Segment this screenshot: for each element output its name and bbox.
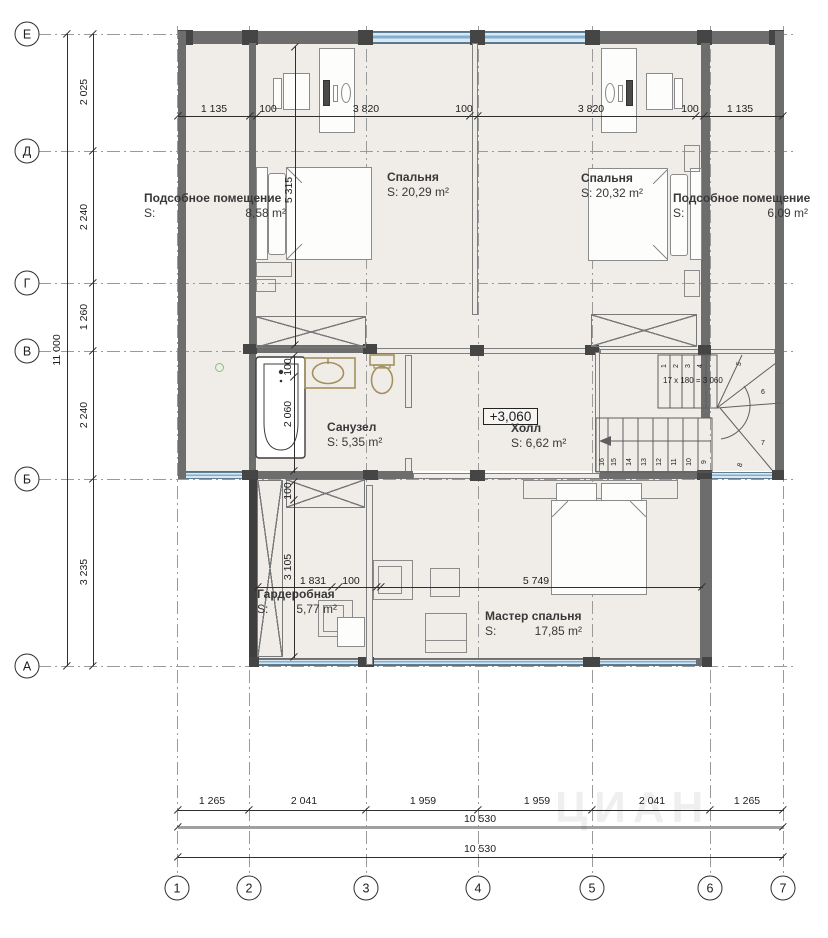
- wall-bath-right-upper: [405, 355, 412, 408]
- room-name: Мастер спальня: [485, 609, 582, 624]
- axis-col-1: 1: [165, 876, 190, 901]
- wall-hall-top: [372, 348, 600, 354]
- room-area: S: 6,62 m²: [511, 436, 566, 451]
- wardrobe-top: [286, 479, 365, 508]
- dim-bath-width: 2 060: [282, 401, 294, 427]
- dim-line-master: [380, 587, 703, 588]
- axis-col-4: 4: [466, 876, 491, 901]
- room-area-value: 17,85 m²: [535, 624, 582, 639]
- dim-wardrobe-wall: 100: [282, 482, 294, 500]
- dim-bottom-total-1: 10 530: [464, 813, 496, 825]
- axis-row-E: Е: [15, 22, 40, 47]
- room-name: Спальня: [581, 171, 643, 186]
- tread-4: 4: [697, 364, 704, 368]
- room-bathroom: Санузел S: 5,35 m²: [327, 420, 382, 450]
- wardrobe-right-bedroom: [591, 314, 697, 347]
- axis-row-B: Б: [15, 467, 40, 492]
- sink-bowl: [313, 363, 344, 384]
- room-name: Подсобное помещение: [144, 191, 286, 206]
- dim-line-left-total: [67, 34, 68, 666]
- tread-6: 6: [761, 389, 765, 396]
- room-area: S: 20,29 m²: [387, 185, 449, 200]
- axis-line-A: [38, 666, 795, 667]
- wall-wardrobe-divider: [366, 485, 373, 665]
- window-b-left: [186, 472, 246, 479]
- dim-master-width: 5 749: [523, 575, 549, 587]
- room-area-label: S:: [485, 624, 496, 639]
- wardrobe-box-2: [337, 617, 365, 647]
- dim-bedroom-depth: 5 315: [283, 177, 295, 203]
- watermark: ЦИАН: [555, 783, 710, 833]
- room-area: S: 5,35 m²: [327, 435, 382, 450]
- wall-hall-bottom: [413, 473, 600, 479]
- dim-top-1: 100: [259, 103, 277, 115]
- dim-top-4: 3 820: [578, 103, 604, 115]
- bathtub-drain: [280, 380, 283, 383]
- tread-16: 16: [599, 458, 606, 466]
- window-bottom-3: [600, 659, 696, 665]
- bed-right-fold-bottom: [653, 245, 668, 260]
- tread-14: 14: [626, 458, 633, 466]
- pillar-v-3: [470, 345, 484, 356]
- tread-2: 2: [673, 364, 680, 368]
- tread-10: 10: [686, 458, 693, 466]
- toilet-bowl: [372, 367, 393, 394]
- bed-master-fold-right: [630, 501, 646, 517]
- axis-col-5: 5: [580, 876, 605, 901]
- chair-right: [605, 83, 615, 103]
- bed-master-fold-left: [552, 501, 568, 517]
- wardrobe-left-bedroom: [256, 316, 366, 348]
- monitor-right: [626, 80, 633, 106]
- ottoman-master: [425, 613, 467, 653]
- room-area-value: 5,77 m²: [296, 602, 337, 617]
- dim-line-wardrobe-h: [257, 587, 380, 588]
- pillar-top-5: [585, 30, 600, 45]
- keyboard-right: [618, 85, 623, 102]
- dim-top-3: 100: [455, 103, 473, 115]
- dim-left-2: 1 260: [78, 304, 90, 330]
- room-area: S: 20,32 m²: [581, 186, 643, 201]
- dresser-left: [283, 73, 310, 110]
- room-area-value: 6,09 m²: [767, 206, 808, 221]
- wall-left-outer: [178, 31, 186, 479]
- pillar-b-3: [470, 470, 485, 481]
- dim-line-total-2: [178, 857, 784, 858]
- chair-left: [341, 83, 351, 103]
- staircase: 1 2 3 4 5 6 7 8 9 10 11 12 13 14 15 16 1…: [593, 348, 788, 480]
- monitor-left: [323, 80, 330, 106]
- pillar-b-2: [363, 470, 378, 480]
- wall-bedroom-divider: [472, 43, 478, 315]
- tread-1: 1: [661, 364, 668, 368]
- tread-8: 8: [737, 462, 745, 468]
- room-name: Спальня: [387, 170, 449, 185]
- axis-col-7: 7: [771, 876, 796, 901]
- dim-left-4: 3 235: [78, 559, 90, 585]
- toilet-tank: [370, 355, 394, 365]
- axis-line-4: [478, 26, 479, 877]
- tread-13: 13: [641, 458, 648, 466]
- room-bedroom-left: Спальня S: 20,29 m²: [387, 170, 449, 200]
- room-hall: Холл S: 6,62 m²: [511, 421, 566, 451]
- axis-line-G: [38, 283, 795, 284]
- shelf-left-1: [256, 262, 292, 277]
- shelf-right-2: [684, 270, 700, 297]
- dim-top-5: 100: [681, 103, 699, 115]
- dim-bottom-5: 1 265: [734, 795, 760, 807]
- dim-bottom-total-2: 10 530: [464, 843, 496, 855]
- shelf-left-2: [256, 279, 276, 292]
- room-area-label: S:: [673, 206, 684, 221]
- dim-left-3: 2 240: [78, 402, 90, 428]
- vent-marker: [215, 363, 224, 372]
- dim-bottom-2: 1 959: [410, 795, 436, 807]
- axis-col-3: 3: [354, 876, 379, 901]
- dim-line-bath: [294, 355, 295, 473]
- dim-bottom-1: 2 041: [291, 795, 317, 807]
- seat-master-1-inner: [378, 566, 402, 594]
- room-area-value: 8,58 m²: [245, 206, 286, 221]
- tread-9: 9: [701, 460, 708, 464]
- tread-12: 12: [656, 458, 663, 466]
- room-master: Мастер спальня S: 17,85 m²: [485, 609, 582, 639]
- tread-7: 7: [761, 440, 765, 447]
- dim-wardrobe-wall2: 100: [342, 575, 360, 587]
- bed-right-fold-top: [653, 169, 668, 184]
- room-name: Подсобное помещение: [673, 191, 808, 206]
- dim-left-total: 11 000: [51, 334, 63, 365]
- room-utility-right: Подсобное помещение S: 6,09 m²: [673, 191, 808, 221]
- stairs-formula: 17 x 180 = 3 060: [663, 376, 723, 385]
- shelf-right-1: [684, 145, 700, 172]
- dim-top-2: 3 820: [353, 103, 379, 115]
- dim-top-6: 1 135: [727, 103, 753, 115]
- floor-plan: 1 2 3 4 5 6 7 8 9 10 11 12 13 14 15 16 1…: [0, 0, 828, 938]
- axis-col-2: 2: [237, 876, 262, 901]
- tread-15: 15: [611, 458, 618, 466]
- wall-bath-bottom: [249, 471, 413, 479]
- dim-left-0: 2 025: [78, 79, 90, 105]
- pillar-bot-4: [702, 657, 712, 667]
- axis-col-6: 6: [698, 876, 723, 901]
- axis-row-A: А: [15, 654, 40, 679]
- room-area-label: S:: [144, 206, 155, 221]
- seat-master-2: [430, 568, 460, 597]
- axis-row-G: Г: [15, 271, 40, 296]
- dim-line-5315: [295, 46, 296, 346]
- pillar-bot-3: [583, 657, 600, 667]
- dim-top-0: 1 135: [201, 103, 227, 115]
- dim-bath-wall: 100: [282, 358, 294, 376]
- wardrobe-tall: [257, 480, 283, 657]
- room-name: Гардеробная: [257, 587, 337, 602]
- window-bottom-1: [258, 659, 358, 665]
- wall-lower-left: [249, 479, 257, 666]
- room-name: Санузел: [327, 420, 382, 435]
- wall-lower-right: [700, 479, 712, 666]
- dim-line-wardrobe-v: [294, 481, 295, 658]
- room-name: Холл: [511, 421, 566, 436]
- dim-bottom-0: 1 265: [199, 795, 225, 807]
- axis-row-D: Д: [15, 139, 40, 164]
- tread-11: 11: [671, 458, 678, 465]
- dim-bottom-3: 1 959: [524, 795, 550, 807]
- dim-wardrobe-width: 1 831: [300, 575, 326, 587]
- pillar-top-3: [358, 30, 373, 45]
- keyboard-left: [333, 85, 338, 102]
- dim-wardrobe-depth: 3 105: [282, 554, 294, 580]
- axis-row-V: В: [15, 339, 40, 364]
- window-bottom-2: [372, 659, 583, 665]
- dim-left-1: 2 240: [78, 204, 90, 230]
- tread-5: 5: [736, 361, 744, 367]
- room-area-label: S:: [257, 602, 268, 617]
- dresser-right: [646, 73, 673, 110]
- axis-line-D: [38, 151, 795, 152]
- pillar-bot-1: [249, 657, 259, 667]
- room-bedroom-right: Спальня S: 20,32 m²: [581, 171, 643, 201]
- tread-3: 3: [685, 364, 692, 368]
- ottoman-master-line: [426, 640, 466, 641]
- room-utility-left: Подсобное помещение S: 8,58 m²: [144, 191, 286, 221]
- room-wardrobe: Гардеробная S: 5,77 m²: [257, 587, 337, 617]
- stairs-arrow: [599, 436, 611, 446]
